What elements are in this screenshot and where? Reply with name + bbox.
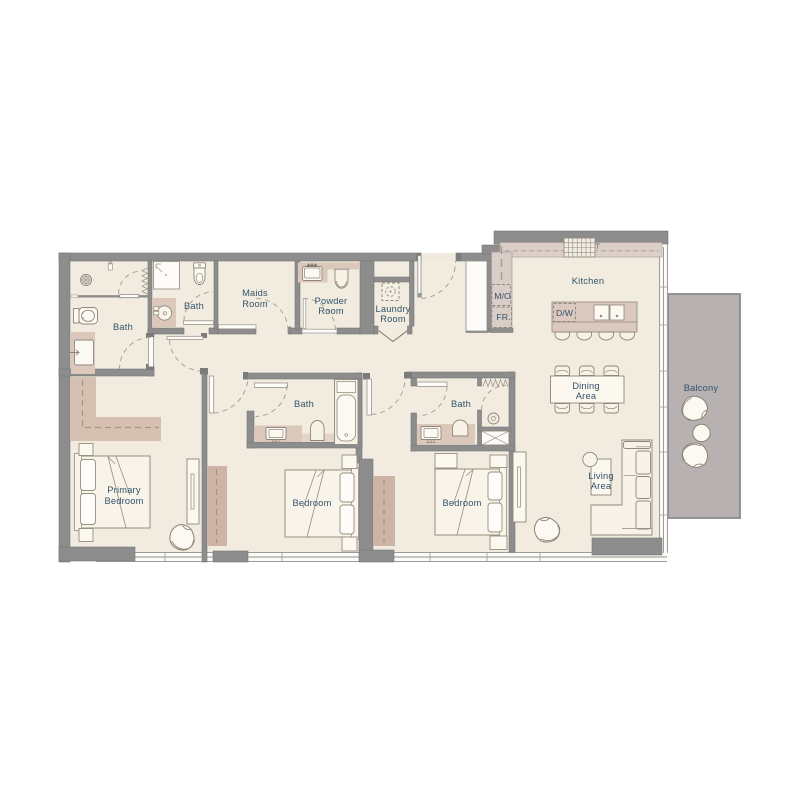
svg-text:M/O: M/O bbox=[494, 291, 511, 301]
svg-text:D/W: D/W bbox=[556, 308, 574, 318]
svg-text:FR.: FR. bbox=[496, 312, 510, 322]
svg-text:Area: Area bbox=[591, 481, 612, 491]
svg-text:Room: Room bbox=[242, 299, 268, 309]
svg-text:Bedroom: Bedroom bbox=[104, 496, 143, 506]
svg-text:Room: Room bbox=[318, 306, 344, 316]
svg-text:Balcony: Balcony bbox=[684, 383, 719, 393]
svg-text:Bath: Bath bbox=[113, 322, 133, 332]
svg-text:Primary: Primary bbox=[107, 485, 141, 495]
svg-text:Living: Living bbox=[588, 471, 614, 481]
svg-text:Bedroom: Bedroom bbox=[292, 498, 331, 508]
svg-text:Dining: Dining bbox=[572, 381, 600, 391]
svg-text:Powder: Powder bbox=[315, 296, 348, 306]
svg-text:Bath: Bath bbox=[294, 399, 314, 409]
svg-text:Kitchen: Kitchen bbox=[572, 276, 604, 286]
svg-text:Bath: Bath bbox=[184, 301, 204, 311]
svg-text:Bath: Bath bbox=[451, 399, 471, 409]
svg-text:Area: Area bbox=[576, 391, 597, 401]
svg-text:Maids: Maids bbox=[242, 288, 268, 298]
svg-text:Bedroom: Bedroom bbox=[442, 498, 481, 508]
svg-text:Room: Room bbox=[380, 314, 406, 324]
svg-text:Laundry: Laundry bbox=[376, 304, 411, 314]
